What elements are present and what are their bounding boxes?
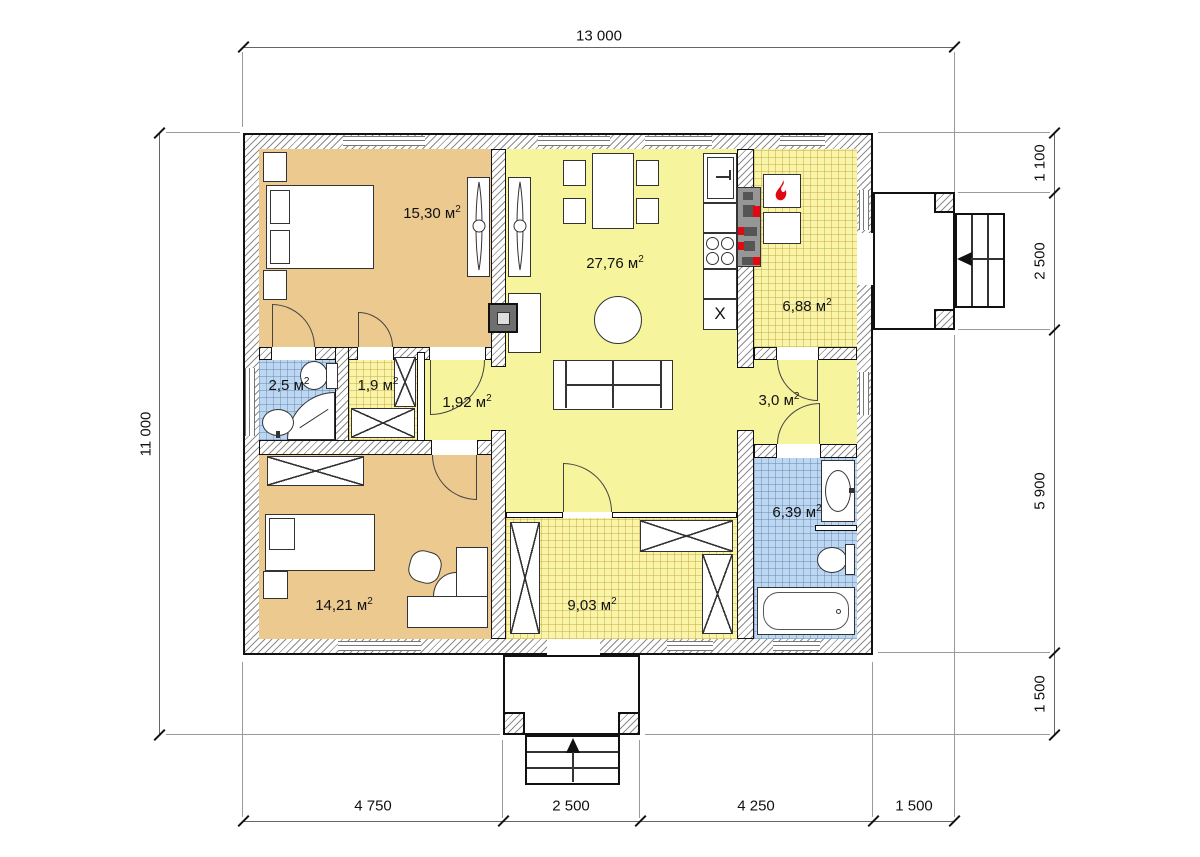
sink-faucet — [729, 170, 731, 180]
wardrobe-box — [267, 456, 364, 486]
wall-segment — [754, 347, 777, 360]
hall-passage — [737, 368, 754, 430]
counter-divider — [704, 232, 736, 234]
dimension-label-top: 13 000 — [576, 28, 622, 45]
porch-pillar — [934, 309, 955, 330]
room-label-living: 27,76 м2 — [586, 254, 644, 272]
nightstand — [263, 152, 287, 182]
desk — [407, 596, 488, 628]
manifold-valve — [753, 257, 760, 265]
bedside-table — [263, 571, 288, 599]
pillow — [270, 190, 290, 224]
wall-segment — [754, 444, 777, 458]
dining-chair — [563, 198, 586, 224]
stair-step-line — [987, 215, 989, 306]
door-opening — [547, 639, 600, 655]
wall-segment — [506, 512, 563, 518]
room-label-entry-hall: 9,03 м2 — [567, 596, 616, 614]
wardrobe-box — [351, 408, 415, 438]
door-opening — [432, 440, 477, 455]
extension-line — [166, 132, 240, 133]
room-label-closet: 1,9 м2 — [358, 376, 399, 394]
bathtub-drain — [836, 609, 841, 614]
stove-burner — [706, 252, 719, 265]
flame-icon — [774, 178, 790, 204]
wardrobe-icon — [510, 178, 530, 274]
dimension-line-top — [243, 47, 955, 48]
nightstand — [263, 270, 287, 300]
sofa-seat-line — [612, 361, 614, 408]
sink-faucet — [716, 176, 730, 178]
manifold-valve — [753, 206, 760, 217]
basin-tap — [849, 488, 855, 493]
basin-tap — [276, 431, 280, 438]
entry-arrow-icon — [957, 252, 972, 266]
wall-segment — [259, 347, 272, 360]
extension-line — [645, 734, 1050, 735]
porch-pillar — [503, 712, 525, 735]
boiler-unit — [763, 174, 801, 208]
window — [338, 641, 421, 651]
room-label-boiler: 6,88 м2 — [782, 297, 831, 315]
counter-divider — [704, 268, 736, 270]
dining-chair — [563, 160, 586, 186]
dining-chair — [636, 198, 659, 224]
extension-line — [958, 329, 1050, 330]
entry-arrow-stem — [971, 258, 1003, 260]
stove-burner — [721, 252, 734, 265]
dimension-label-bottom-3: 4 250 — [737, 798, 775, 815]
extension-line — [878, 132, 1050, 133]
extension-line — [954, 335, 955, 817]
washbasin-icon — [825, 470, 851, 512]
wardrobe — [467, 177, 490, 277]
extension-line — [878, 652, 1050, 653]
extension-line — [242, 662, 243, 817]
window — [780, 136, 825, 146]
window — [667, 641, 713, 651]
door-opening — [777, 444, 820, 458]
manifold-block — [743, 192, 753, 200]
room-label-hall-small: 1,92 м2 — [442, 393, 491, 411]
floor-plan: 13 000 11 000 1 100 2 500 5 900 1 500 4 … — [0, 0, 1200, 857]
dimension-line-right — [1054, 133, 1055, 735]
door-opening — [563, 512, 612, 518]
stove-burner — [706, 237, 719, 250]
extension-line — [958, 192, 1050, 193]
room-label-bathroom-small: 2,5 м2 — [269, 376, 310, 394]
wardrobe-icon — [469, 178, 489, 274]
wall-segment — [818, 347, 857, 360]
door-opening — [358, 347, 393, 360]
wall-segment — [259, 440, 432, 455]
room-label-bedroom-2: 14,21 м2 — [315, 596, 373, 614]
toilet-tank — [845, 544, 855, 575]
sofa-armrest-line — [660, 361, 662, 408]
porch-pillar — [618, 712, 640, 735]
window — [538, 136, 610, 146]
chimney-flue — [497, 312, 510, 325]
window — [245, 368, 255, 436]
wall-segment — [612, 512, 737, 518]
window — [645, 136, 712, 146]
dining-table — [592, 153, 634, 229]
counter-divider — [704, 202, 736, 204]
toilet-tank — [326, 363, 338, 389]
room-label-bathroom-large: 6,39 м2 — [772, 503, 821, 521]
dimension-label-right-4: 1 500 — [1032, 675, 1049, 713]
pillow — [269, 518, 295, 550]
wardrobe-box — [640, 520, 733, 552]
wall-segment — [417, 352, 425, 444]
room-label-bedroom-1: 15,30 м2 — [403, 204, 461, 222]
dimension-label-bottom-1: 4 750 — [354, 798, 392, 815]
manifold-block — [742, 257, 753, 265]
dimension-label-left: 11 000 — [138, 412, 155, 457]
toilet-icon — [817, 547, 847, 573]
door-opening — [430, 347, 485, 360]
wall-segment — [491, 149, 506, 367]
dimension-label-right-3: 5 900 — [1032, 472, 1049, 510]
wall-segment — [491, 430, 506, 639]
dimension-label-right-2: 2 500 — [1032, 242, 1049, 280]
room-label-hall-right: 3,0 м2 — [759, 391, 800, 409]
wall-segment — [820, 444, 857, 458]
round-table — [594, 296, 642, 344]
extension-line — [242, 52, 243, 127]
door-opening — [272, 347, 315, 360]
manifold-block — [744, 241, 755, 251]
boiler-cabinet — [763, 212, 801, 244]
manifold-block — [744, 227, 757, 236]
stove-burner — [721, 237, 734, 250]
extension-line — [166, 734, 500, 735]
dimension-label-right-1: 1 100 — [1032, 144, 1049, 182]
extension-line — [872, 662, 873, 817]
wardrobe-box — [510, 522, 540, 634]
entry-arrow-stem — [572, 752, 574, 782]
wardrobe — [508, 177, 531, 277]
extension-line — [639, 740, 640, 818]
dining-chair — [636, 160, 659, 186]
dimension-line-bottom — [243, 821, 955, 822]
dimension-line-left — [159, 133, 160, 735]
counter-divider — [704, 298, 736, 300]
pillow — [270, 230, 290, 264]
dimension-label-bottom-4: 1 500 — [895, 798, 933, 815]
wardrobe-box — [702, 554, 733, 634]
wall-segment — [815, 525, 857, 531]
door-opening — [857, 233, 873, 285]
entry-arrow-icon — [566, 738, 580, 753]
window — [859, 372, 869, 415]
extension-line — [502, 740, 503, 818]
window — [859, 190, 869, 230]
appliance-x-marker: X — [714, 304, 725, 324]
dimension-label-bottom-2: 2 500 — [552, 798, 590, 815]
window — [343, 136, 425, 146]
door-opening — [777, 347, 818, 360]
porch-pillar — [934, 192, 955, 213]
wall-segment — [737, 430, 754, 639]
window — [773, 641, 820, 651]
